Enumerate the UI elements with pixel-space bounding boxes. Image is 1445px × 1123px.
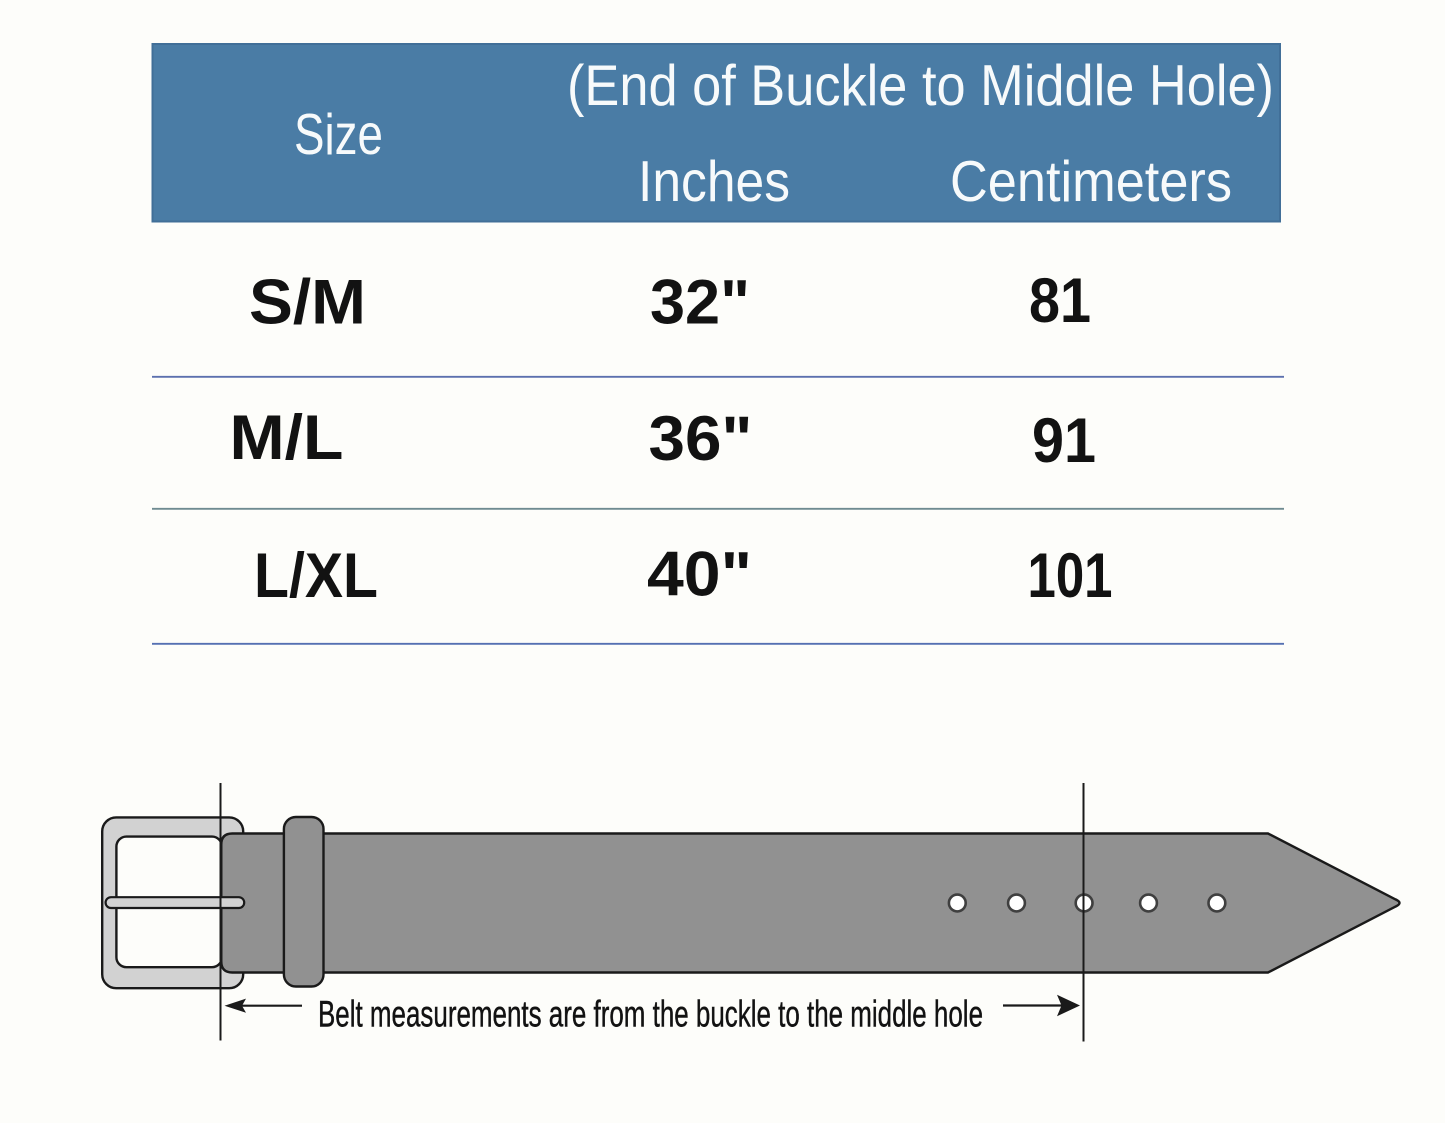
svg-text:36": 36" <box>649 404 753 474</box>
svg-text:Centimeters: Centimeters <box>950 150 1232 214</box>
svg-text:Inches: Inches <box>638 150 790 214</box>
svg-text:Belt measurements are from the: Belt measurements are from the buckle to… <box>318 994 983 1035</box>
svg-text:M/L: M/L <box>230 403 344 473</box>
svg-text:(End of Buckle to Middle Hole): (End of Buckle to Middle Hole) <box>567 54 1274 118</box>
svg-text:101: 101 <box>1028 541 1113 611</box>
svg-text:81: 81 <box>1029 266 1091 336</box>
svg-text:Size: Size <box>294 103 383 167</box>
svg-text:40": 40" <box>647 540 752 610</box>
svg-text:L/XL: L/XL <box>254 541 378 611</box>
svg-text:S/M: S/M <box>249 268 366 338</box>
svg-text:91: 91 <box>1032 406 1096 476</box>
svg-text:32": 32" <box>650 268 750 338</box>
